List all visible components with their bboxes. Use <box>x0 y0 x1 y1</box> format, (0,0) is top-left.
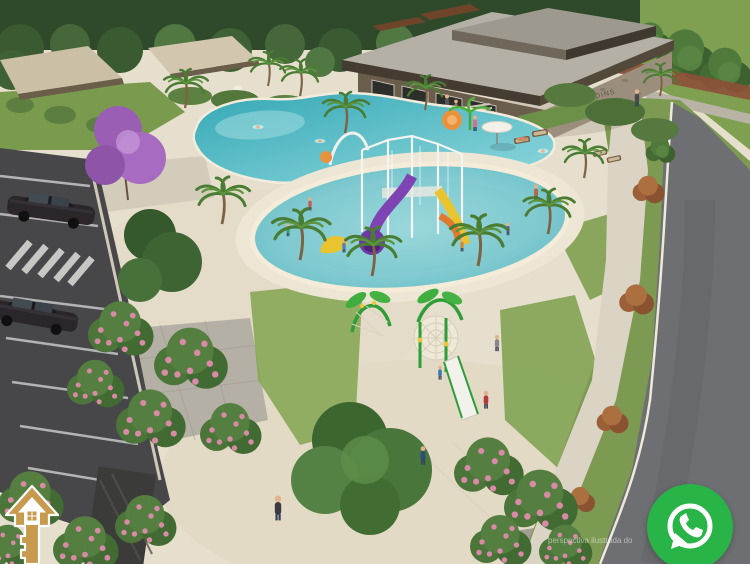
watermark-text: perspectiva ilustrada do <box>548 536 633 545</box>
scene-render: JARDINS <box>0 0 750 564</box>
render-image: JARDINS <box>0 0 750 564</box>
house-key-logo <box>3 484 63 564</box>
whatsapp-button[interactable] <box>647 484 733 564</box>
pool-umbrella <box>482 122 512 133</box>
whatsapp-icon <box>647 484 733 564</box>
house-key-logo-icon <box>3 484 63 564</box>
